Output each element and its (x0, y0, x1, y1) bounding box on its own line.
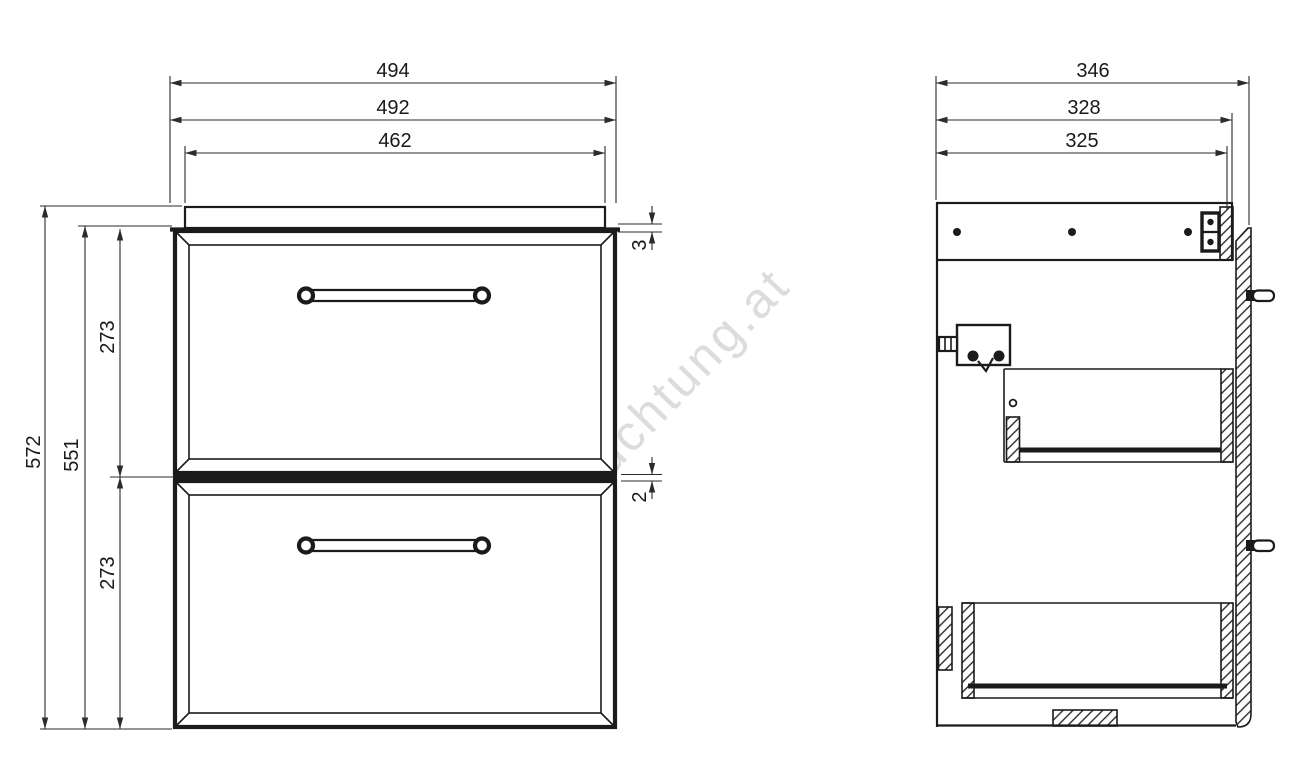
dim-front-overall-width: 494 (376, 60, 409, 82)
drawing-canvas: beleuchtung.at (0, 0, 1304, 777)
side-bottom-rail-section (1053, 710, 1117, 726)
dim-side-inner-depth: 325 (1065, 130, 1098, 152)
side-top-drawer-box (1004, 369, 1233, 462)
front-top-drawer (175, 231, 615, 473)
dim-side-overall-depth: 346 (1076, 60, 1109, 82)
side-rail-front-section (1220, 207, 1233, 260)
front-view: 494 492 462 572 551 273 273 (23, 60, 662, 729)
technical-drawing-page: beleuchtung.at (0, 0, 1304, 777)
dim-front-bottom-drawer-height: 273 (97, 556, 119, 589)
side-drawer-front-panel-section (1236, 228, 1251, 727)
side-view: 346 328 325 (936, 60, 1274, 727)
dim-side-body-depth: 328 (1067, 97, 1100, 119)
dim-front-overall-height: 572 (23, 435, 45, 468)
side-top-knob (1246, 290, 1274, 301)
front-top-drawer-handle (299, 289, 489, 303)
side-slide-clip (939, 325, 1010, 371)
front-bottom-drawer (175, 481, 615, 727)
side-mounting-bracket (1202, 213, 1219, 251)
dim-front-top-gap: 3 (629, 239, 651, 250)
front-height-dimensions: 572 551 273 273 (23, 206, 182, 729)
dim-front-drawer-gap: 2 (629, 491, 651, 502)
dim-front-body-height: 551 (61, 438, 83, 471)
side-depth-dimensions: 346 328 325 (936, 60, 1249, 225)
side-bottom-knob (1246, 540, 1274, 551)
dim-front-top-drawer-height: 273 (97, 320, 119, 353)
screw-hole-dot (953, 228, 961, 236)
front-width-dimensions: 494 492 462 (170, 60, 616, 203)
front-bottom-drawer-handle (299, 539, 489, 553)
dim-front-top-opening-width: 462 (378, 130, 411, 152)
front-top-rail (185, 207, 605, 228)
dim-front-body-width: 492 (376, 97, 409, 119)
side-bottom-drawer-box (962, 603, 1233, 698)
screw-hole-dot (1068, 228, 1076, 236)
side-wall-rail-section (939, 607, 953, 670)
screw-hole-dot (1184, 228, 1192, 236)
